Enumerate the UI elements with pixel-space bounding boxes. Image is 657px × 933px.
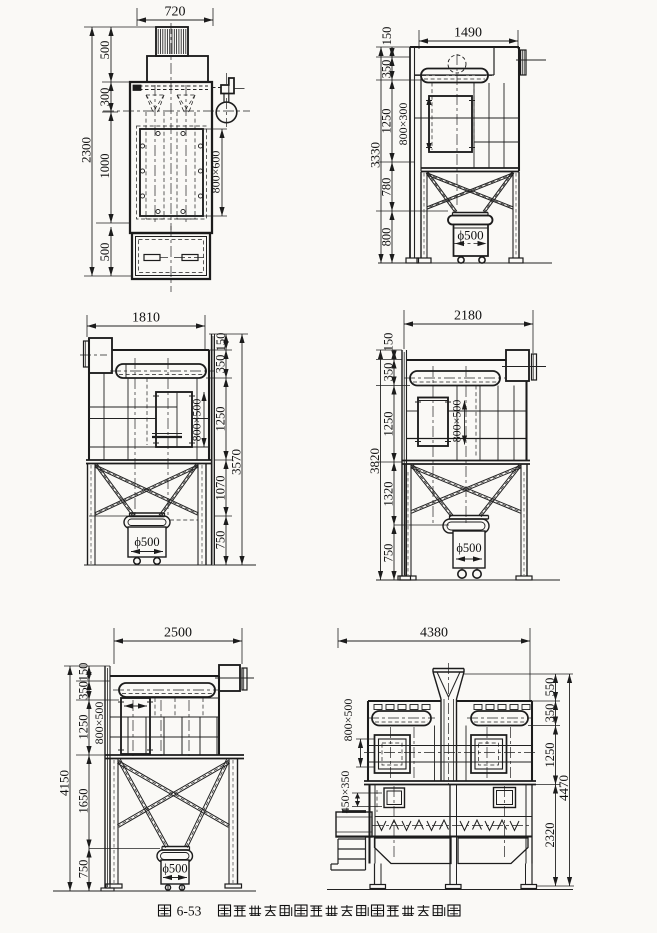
svg-text:350: 350 — [77, 681, 91, 700]
svg-text:ϕ500: ϕ500 — [162, 862, 187, 876]
svg-text:450×350: 450×350 — [338, 771, 352, 814]
svg-text:1250: 1250 — [214, 407, 228, 432]
svg-text:2300: 2300 — [79, 137, 94, 163]
svg-text:800×500: 800×500 — [92, 702, 106, 745]
svg-text:800×600: 800×600 — [209, 151, 223, 194]
svg-text:1650: 1650 — [77, 789, 91, 814]
svg-text:1320: 1320 — [382, 482, 396, 507]
svg-text:1810: 1810 — [132, 311, 160, 326]
svg-text:6-53: 6-53 — [177, 904, 202, 919]
svg-text:150: 150 — [380, 27, 394, 46]
svg-text:1250: 1250 — [380, 109, 394, 134]
svg-text:750: 750 — [214, 531, 228, 550]
svg-text:3330: 3330 — [368, 142, 383, 168]
svg-text:750: 750 — [77, 860, 91, 879]
svg-text:3570: 3570 — [229, 449, 244, 475]
svg-text:300: 300 — [98, 88, 112, 107]
svg-text:1070: 1070 — [214, 476, 228, 501]
svg-text:4380: 4380 — [420, 626, 448, 641]
svg-text:ϕ500: ϕ500 — [457, 228, 483, 243]
svg-text:4470: 4470 — [556, 775, 571, 801]
svg-text:800×500: 800×500 — [341, 699, 355, 742]
svg-text:2320: 2320 — [543, 823, 557, 848]
svg-text:720: 720 — [165, 5, 186, 20]
svg-text:780: 780 — [380, 178, 394, 197]
svg-text:1000: 1000 — [98, 154, 112, 179]
svg-text:350: 350 — [543, 704, 557, 723]
svg-text:ϕ500: ϕ500 — [134, 535, 159, 549]
svg-text:800: 800 — [380, 228, 394, 247]
svg-text:800×300: 800×300 — [396, 103, 410, 146]
svg-text:1250: 1250 — [77, 715, 91, 740]
svg-text:350: 350 — [380, 60, 394, 79]
svg-text:350: 350 — [382, 363, 396, 382]
svg-text:150: 150 — [77, 663, 91, 682]
svg-text:1490: 1490 — [454, 26, 482, 41]
svg-text:150: 150 — [382, 333, 396, 352]
svg-text:1250: 1250 — [382, 412, 396, 437]
svg-text:750: 750 — [382, 544, 396, 563]
svg-text:2180: 2180 — [454, 309, 482, 324]
svg-text:4150: 4150 — [57, 770, 72, 796]
svg-text:550: 550 — [543, 678, 557, 697]
svg-text:1250: 1250 — [543, 743, 557, 768]
svg-text:350: 350 — [214, 355, 228, 374]
svg-text:150: 150 — [214, 333, 228, 352]
svg-text:500: 500 — [98, 243, 112, 262]
svg-text:500: 500 — [98, 41, 112, 60]
svg-text:800×500: 800×500 — [450, 400, 464, 443]
svg-text:800×500: 800×500 — [190, 399, 204, 442]
svg-text:2500: 2500 — [164, 626, 192, 641]
svg-text:3820: 3820 — [367, 448, 382, 474]
svg-text:ϕ500: ϕ500 — [456, 541, 481, 555]
